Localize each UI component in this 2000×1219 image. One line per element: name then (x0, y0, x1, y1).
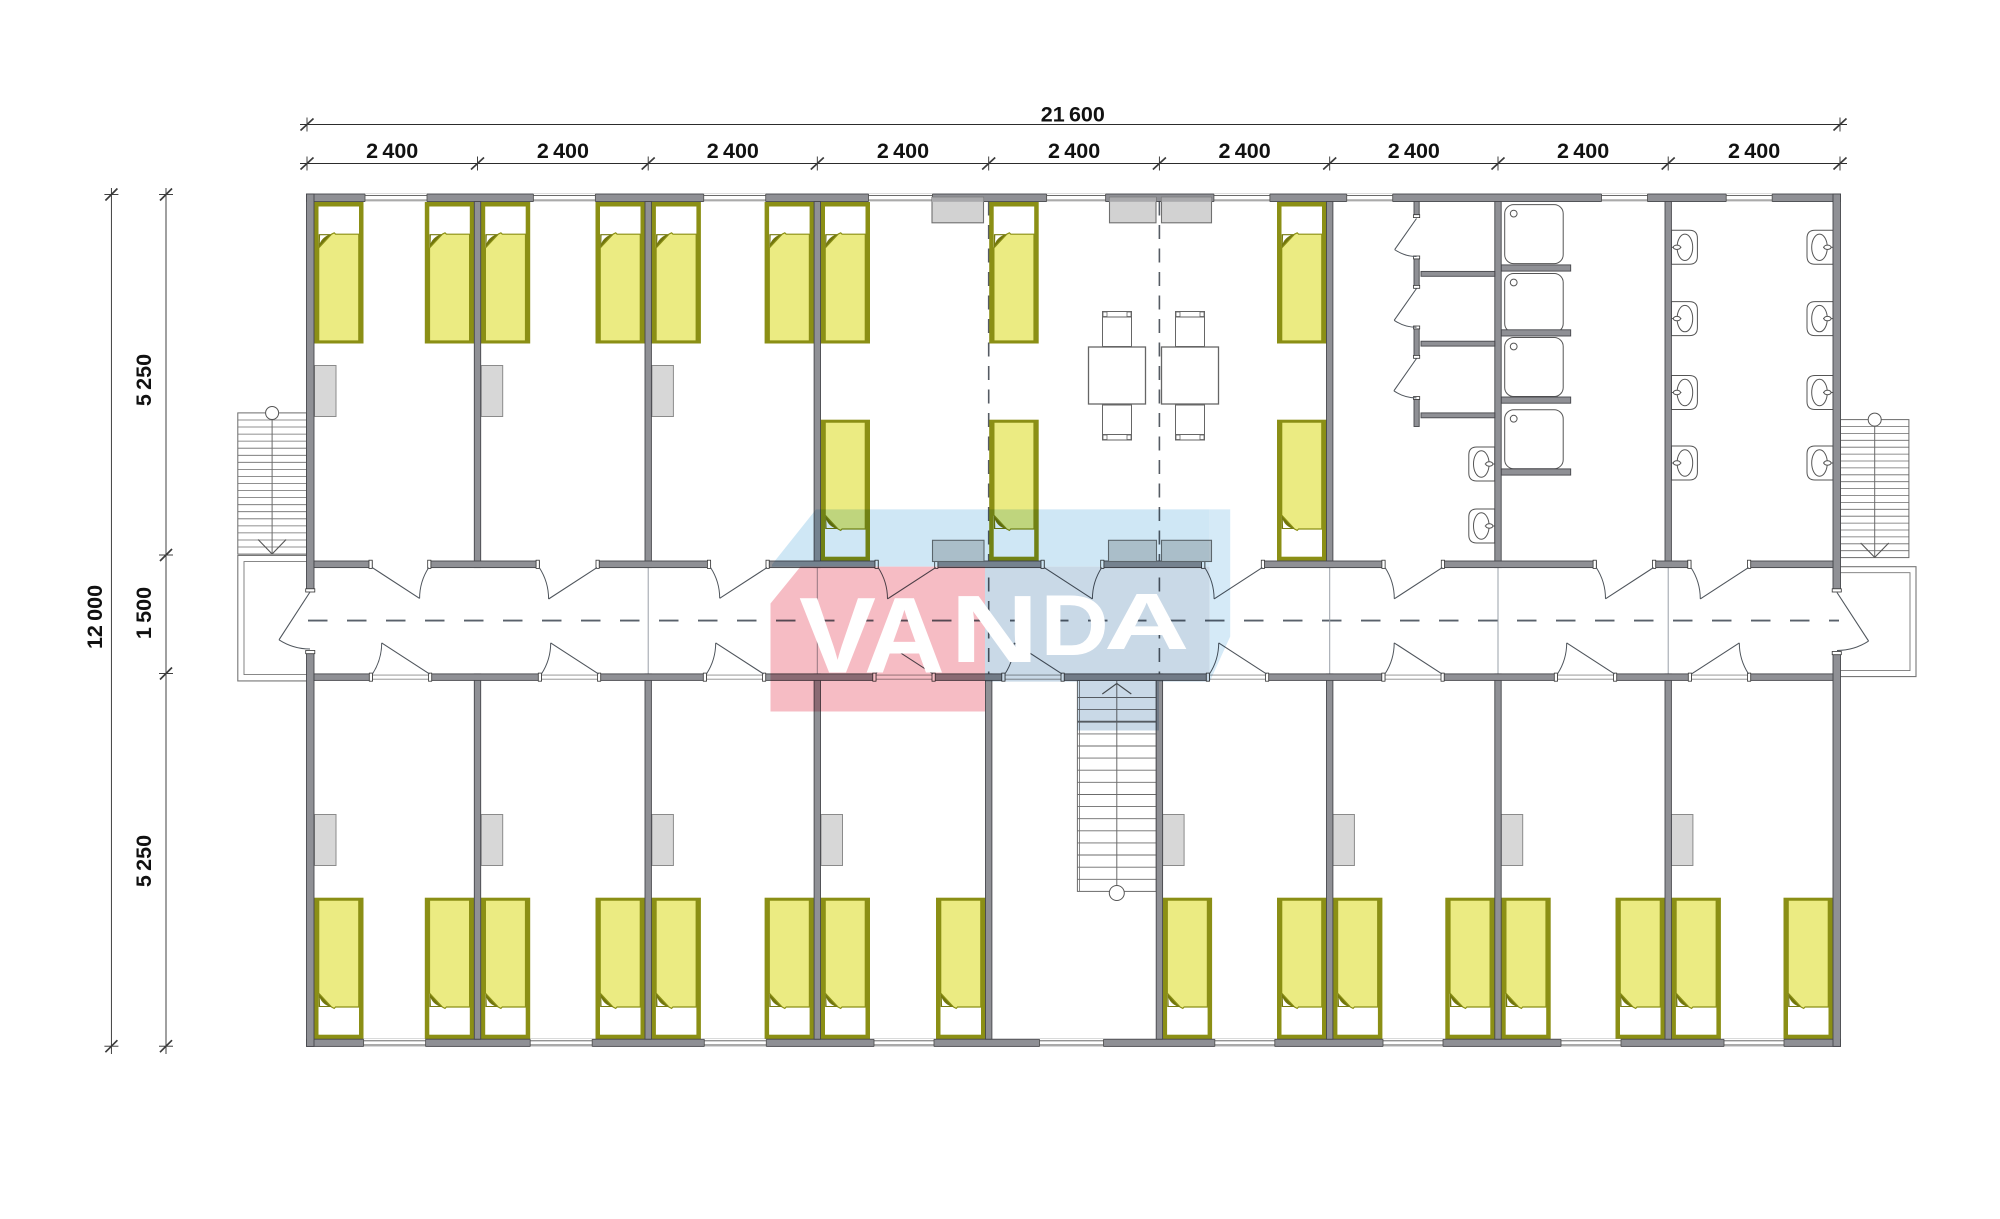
svg-text:2 400: 2 400 (877, 139, 929, 163)
svg-text:A: A (1104, 578, 1189, 666)
svg-text:2 400: 2 400 (537, 139, 589, 163)
svg-text:12 000: 12 000 (83, 585, 107, 649)
svg-text:N: N (950, 577, 1039, 683)
svg-text:2 400: 2 400 (1557, 139, 1609, 163)
svg-text:1 500: 1 500 (132, 587, 156, 639)
svg-text:2 400: 2 400 (366, 139, 418, 163)
svg-text:2 400: 2 400 (1048, 139, 1100, 163)
svg-text:5 250: 5 250 (132, 835, 156, 887)
svg-text:2 400: 2 400 (707, 139, 759, 163)
svg-text:2 400: 2 400 (1219, 139, 1271, 163)
svg-text:5 250: 5 250 (132, 354, 156, 406)
svg-text:21 600: 21 600 (1041, 103, 1105, 127)
svg-text:2 400: 2 400 (1728, 139, 1780, 163)
svg-text:2 400: 2 400 (1388, 139, 1440, 163)
svg-text:D: D (1040, 578, 1109, 674)
svg-text:A: A (864, 575, 945, 695)
